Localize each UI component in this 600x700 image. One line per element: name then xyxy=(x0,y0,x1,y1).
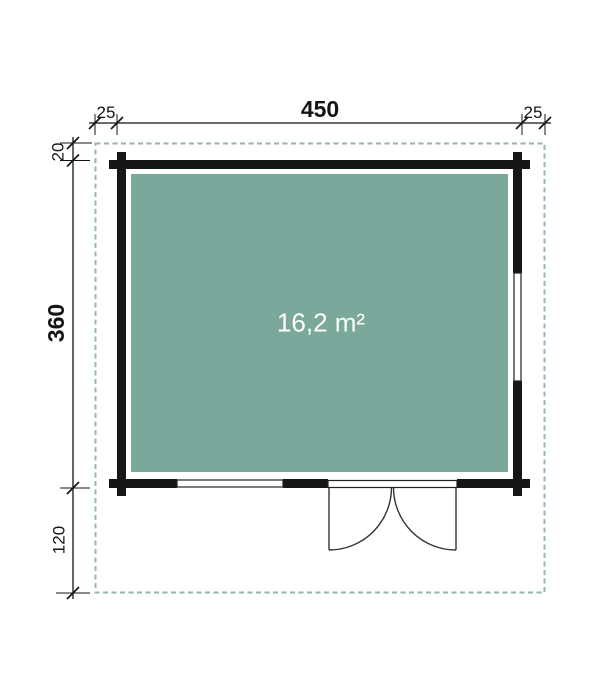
wall-top xyxy=(109,160,530,169)
dimension-top: 25 450 25 xyxy=(89,96,551,135)
dimension-label-front-overhang: 120 xyxy=(50,526,69,554)
door-swing-arc-left xyxy=(329,488,392,551)
dimension-label-depth: 360 xyxy=(43,304,69,342)
floor-plan-drawing: 16,2 m² 25 450 25 20 360 120 xyxy=(0,0,600,700)
dimension-left: 20 360 120 xyxy=(43,137,92,599)
door-swing-arc-right xyxy=(394,488,457,551)
wall-left xyxy=(117,152,126,496)
window-bottom-wall xyxy=(177,480,283,487)
wall-bottom-middle-segment xyxy=(283,479,328,488)
dimension-label-overhang-top: 20 xyxy=(49,143,68,162)
wall-right-lower-segment xyxy=(513,381,522,496)
door-threshold xyxy=(328,481,457,488)
dimension-label-overhang-right: 25 xyxy=(524,103,543,122)
wall-bottom-right-segment xyxy=(457,479,530,488)
window-right-wall xyxy=(514,273,521,381)
area-label: 16,2 m² xyxy=(277,308,365,338)
floor-plan-canvas: 16,2 m² 25 450 25 20 360 120 xyxy=(0,0,600,700)
wall-right-upper-segment xyxy=(513,152,522,273)
dimension-label-overhang-left: 25 xyxy=(97,103,116,122)
dimension-label-width: 450 xyxy=(301,96,339,122)
wall-bottom-left-segment xyxy=(109,479,177,488)
